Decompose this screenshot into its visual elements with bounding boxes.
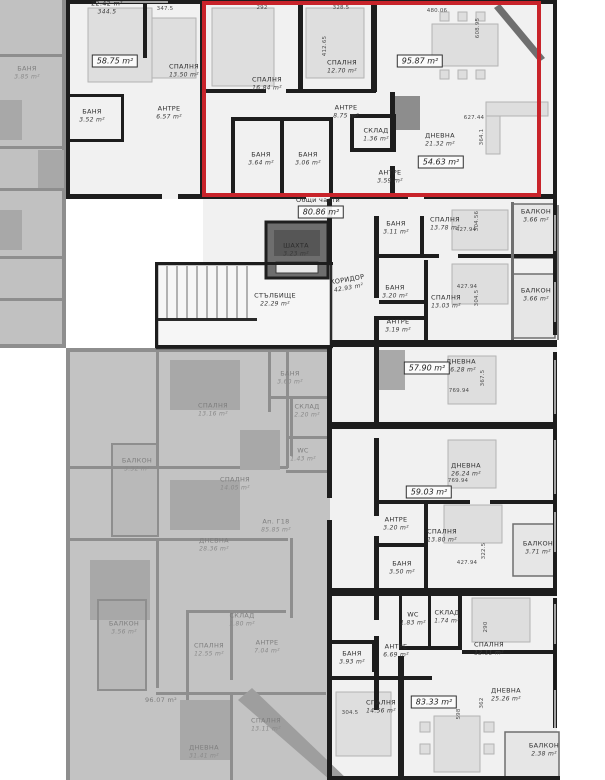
dimension-label-5: 608.95	[475, 18, 481, 38]
room-name: БАНЯ	[277, 371, 303, 379]
room-area: 3.85 m²	[14, 73, 40, 80]
dimension-label-2: 328.5	[333, 5, 350, 11]
room-area: 3.19 m²	[385, 326, 411, 333]
dimension-label-17: 290	[483, 621, 489, 632]
room-label-45: БАЛКОН3.32 m²	[122, 458, 152, 473]
room-label-28: БАНЯ3.50 m²	[389, 561, 415, 576]
room-name: Ап. Г18	[261, 519, 291, 527]
room-name: БАНЯ	[248, 152, 274, 160]
room-name: СПАЛНЯ	[366, 700, 396, 708]
room-label-32: АНТРЕ6.69 m²	[383, 644, 409, 659]
room-area: 6.69 m²	[383, 651, 409, 658]
room-name: АНТРЕ	[254, 640, 280, 648]
room-label-51: СПАЛНЯ13.11 m²	[251, 718, 281, 733]
room-area: 3.32 m²	[122, 465, 152, 472]
room-area: 3.71 m²	[523, 548, 553, 555]
room-label-20: СПАЛНЯ13.03 m²	[431, 295, 461, 310]
room-label-22: АНТРЕ3.19 m²	[385, 319, 411, 334]
dimension-label-0: 347.5	[157, 6, 174, 12]
room-area: 1.36 m²	[363, 135, 389, 142]
unit-area-box-1: 95.87 m²	[397, 55, 443, 68]
unit-area-box-2: 54.63 m²	[418, 156, 464, 169]
dimension-label-16: 427.94	[457, 560, 477, 566]
room-name: БАНЯ	[295, 152, 321, 160]
room-area: 3.56 m²	[109, 628, 139, 635]
room-name: 96.07 m²	[145, 697, 177, 705]
labels-layer: 22.42 m²344.5СПАЛНЯ13.50 m²АНТРЕ6.57 m²Б…	[0, 0, 605, 780]
room-label-34: СПАЛНЯ14.56 m²	[366, 700, 396, 715]
room-label-3: БАНЯ3.52 m²	[79, 109, 105, 124]
dimension-label-7: 364.1	[479, 129, 485, 146]
room-label-48: СПАЛНЯ12.55 m²	[194, 643, 224, 658]
room-area: 22.29 m²	[254, 300, 296, 307]
room-name: БАНЯ	[382, 285, 408, 293]
unit-area-box-0: 58.75 m²	[92, 55, 138, 68]
room-area: 14.56 m²	[366, 707, 396, 714]
room-label-12: Общи части	[296, 197, 340, 205]
room-name: СКЛАД	[363, 128, 389, 136]
room-label-37: БАНЯ3.85 m²	[14, 66, 40, 81]
room-label-25: АНТРЕ3.20 m²	[383, 517, 409, 532]
room-name: БАЛКОН	[529, 743, 559, 751]
room-area: 3.23 m²	[283, 250, 309, 257]
room-label-50: АНТРЕ7.04 m²	[254, 640, 280, 655]
room-name: ДНЕВНА	[451, 463, 481, 471]
dimension-label-18: 304.5	[342, 710, 359, 716]
floor-plan: 22.42 m²344.5СПАЛНЯ13.50 m²АНТРЕ6.57 m²Б…	[0, 0, 605, 780]
room-name: СТЪЛБИЩЕ	[254, 293, 296, 301]
room-area: 3.66 m²	[521, 216, 551, 223]
unit-area-box-5: 59.03 m²	[406, 486, 452, 499]
room-area: 14.05 m²	[220, 484, 250, 491]
room-area: 31.41 m²	[189, 752, 219, 759]
room-label-33: БАНЯ3.93 m²	[339, 651, 365, 666]
room-label-8: БАНЯ3.06 m²	[295, 152, 321, 167]
room-name: АНТРЕ	[383, 517, 409, 525]
room-name: СКЛАД	[434, 610, 460, 618]
room-label-41: WC1.43 m²	[290, 448, 316, 463]
room-label-21: БАЛКОН3.66 m²	[521, 288, 551, 303]
room-area: 12.70 m²	[327, 67, 357, 74]
room-name: ДНЕВНА	[491, 688, 521, 696]
room-name: АНТРЕ	[333, 105, 359, 113]
unit-area-box-3: 80.86 m²	[298, 206, 344, 219]
room-name: ДНЕВНА	[199, 538, 229, 546]
room-area: 25.26 m²	[491, 695, 521, 702]
room-label-23: ДНЕВНА26.28 m²	[446, 359, 476, 374]
room-label-49: СКЛАД1.80 m²	[229, 613, 255, 628]
room-label-10: АНТРЕ3.59 m²	[377, 170, 403, 185]
room-area: 3.50 m²	[389, 568, 415, 575]
dimension-label-11: 304.5	[474, 290, 480, 307]
room-area: 12.11 m²	[474, 649, 504, 656]
room-name: БАНЯ	[14, 66, 40, 74]
room-label-43: Ап. Г1885.85 m²	[261, 519, 291, 534]
room-area: 2.38 m²	[529, 750, 559, 757]
room-label-42: СПАЛНЯ14.05 m²	[220, 477, 250, 492]
room-name: БАНЯ	[383, 221, 409, 229]
dimension-label-20: 362	[479, 697, 485, 708]
dimension-label-1: 292	[256, 5, 267, 11]
room-label-31: СПАЛНЯ12.11 m²	[474, 642, 504, 657]
dimension-label-4: 480.06	[427, 8, 447, 14]
dimension-label-9: 427.94	[456, 227, 476, 233]
room-label-2: АНТРЕ6.57 m²	[156, 106, 182, 121]
room-label-13: ШАХТА3.23 m²	[283, 243, 309, 258]
room-area: 3.06 m²	[295, 159, 321, 166]
room-area: 85.85 m²	[261, 526, 291, 533]
room-area: 2.20 m²	[294, 411, 320, 418]
room-area: 3.60 m²	[277, 378, 303, 385]
room-name: СПАЛНЯ	[427, 529, 457, 537]
room-name: БАНЯ	[389, 561, 415, 569]
room-area: 16.84 m²	[252, 84, 282, 91]
dimension-label-6: 627.44	[464, 115, 484, 121]
room-name: БАЛКОН	[521, 288, 551, 296]
room-name: WC	[290, 448, 316, 456]
room-area: 3.20 m²	[382, 292, 408, 299]
room-area: 13.16 m²	[198, 410, 228, 417]
room-area: 13.03 m²	[431, 302, 461, 309]
room-area: 3.59 m²	[377, 177, 403, 184]
room-name: СКЛАД	[294, 404, 320, 412]
room-label-30: СКЛАД1.74 m²	[434, 610, 460, 625]
room-label-0: 22.42 m²344.5	[91, 1, 123, 16]
room-name: АНТРЕ	[156, 106, 182, 114]
room-area: 8.75 m²	[333, 112, 359, 119]
room-label-14: СТЪЛБИЩЕ22.29 m²	[254, 293, 296, 308]
room-area: 3.11 m²	[383, 228, 409, 235]
room-name: БАЛКОН	[122, 458, 152, 466]
room-area: 3.20 m²	[383, 524, 409, 531]
room-label-15: КОРИДОР42.93 m²	[330, 274, 367, 295]
room-name: СПАЛНЯ	[474, 642, 504, 650]
room-label-38: СПАЛНЯ13.16 m²	[198, 403, 228, 418]
room-name: WC	[400, 612, 426, 620]
room-label-16: БАНЯ3.11 m²	[383, 221, 409, 236]
room-label-6: АНТРЕ8.75 m²	[333, 105, 359, 120]
room-name: СПАЛНЯ	[430, 217, 460, 225]
dimension-label-15: 322.5	[481, 543, 487, 560]
dimension-label-14: 769.94	[448, 478, 468, 484]
room-label-9: СКЛАД1.36 m²	[363, 128, 389, 143]
room-label-46: БАЛКОН3.56 m²	[109, 621, 139, 636]
room-area: 26.28 m²	[446, 366, 476, 373]
room-label-47: 96.07 m²	[145, 697, 177, 705]
dimension-label-19: 598	[456, 708, 462, 719]
room-name: АНТРЕ	[377, 170, 403, 178]
room-label-24: ДНЕВНА26.24 m²	[451, 463, 481, 478]
room-area: 344.5	[91, 8, 123, 15]
room-area: 1.80 m²	[229, 620, 255, 627]
unit-area-box-6: 83.33 m²	[411, 696, 457, 709]
unit-area-box-4: 57.90 m²	[404, 362, 450, 375]
dimension-label-12: 367.5	[480, 370, 486, 387]
room-name: ДНЕВНА	[446, 359, 476, 367]
room-label-40: СКЛАД2.20 m²	[294, 404, 320, 419]
room-area: 12.55 m²	[194, 650, 224, 657]
room-area: 3.64 m²	[248, 159, 274, 166]
room-area: 13.80 m²	[427, 536, 457, 543]
room-label-19: БАНЯ3.20 m²	[382, 285, 408, 300]
dimension-label-3: 412.65	[322, 36, 328, 56]
room-label-27: БАЛКОН3.71 m²	[523, 541, 553, 556]
room-label-39: БАНЯ3.60 m²	[277, 371, 303, 386]
room-area: 3.52 m²	[79, 116, 105, 123]
room-area: 28.36 m²	[199, 545, 229, 552]
room-name: СПАЛНЯ	[220, 477, 250, 485]
room-area: 1.43 m²	[290, 455, 316, 462]
room-label-5: СПАЛНЯ12.70 m²	[327, 60, 357, 75]
room-name: БАНЯ	[79, 109, 105, 117]
room-area: 13.50 m²	[169, 71, 199, 78]
room-name: ДНЕВНА	[189, 745, 219, 753]
room-area: 3.93 m²	[339, 658, 365, 665]
room-label-44: ДНЕВНА28.36 m²	[199, 538, 229, 553]
room-name: ДНЕВНА	[425, 133, 455, 141]
room-name: СПАЛНЯ	[194, 643, 224, 651]
room-label-29: WC1.83 m²	[400, 612, 426, 627]
room-label-4: СПАЛНЯ16.84 m²	[252, 77, 282, 92]
room-name: БАЛКОН	[523, 541, 553, 549]
dimension-label-13: 769.94	[449, 388, 469, 394]
room-area: 7.04 m²	[254, 647, 280, 654]
room-name: АНТРЕ	[383, 644, 409, 652]
room-name: СКЛАД	[229, 613, 255, 621]
room-label-52: ДНЕВНА31.41 m²	[189, 745, 219, 760]
room-name: 22.42 m²	[91, 1, 123, 9]
room-name: СПАЛНЯ	[327, 60, 357, 68]
room-label-36: БАЛКОН2.38 m²	[529, 743, 559, 758]
room-label-1: СПАЛНЯ13.50 m²	[169, 64, 199, 79]
room-area: 1.74 m²	[434, 617, 460, 624]
room-label-11: ДНЕВНА21.32 m²	[425, 133, 455, 148]
room-name: ШАХТА	[283, 243, 309, 251]
room-name: СПАЛНЯ	[198, 403, 228, 411]
room-area: 26.24 m²	[451, 470, 481, 477]
room-label-7: БАНЯ3.64 m²	[248, 152, 274, 167]
room-name: БАЛКОН	[109, 621, 139, 629]
room-name: БАЛКОН	[521, 209, 551, 217]
room-name: СПАЛНЯ	[169, 64, 199, 72]
room-name: БАНЯ	[339, 651, 365, 659]
room-name: СПАЛНЯ	[251, 718, 281, 726]
room-name: АНТРЕ	[385, 319, 411, 327]
room-label-26: СПАЛНЯ13.80 m²	[427, 529, 457, 544]
room-name: СПАЛНЯ	[252, 77, 282, 85]
room-area: 3.66 m²	[521, 295, 551, 302]
room-area: 1.83 m²	[400, 619, 426, 626]
room-area: 6.57 m²	[156, 113, 182, 120]
room-area: 21.32 m²	[425, 140, 455, 147]
room-label-35: ДНЕВНА25.26 m²	[491, 688, 521, 703]
room-name: Общи части	[296, 197, 340, 205]
room-label-18: БАЛКОН3.66 m²	[521, 209, 551, 224]
room-name: СПАЛНЯ	[431, 295, 461, 303]
room-area: 13.11 m²	[251, 725, 281, 732]
